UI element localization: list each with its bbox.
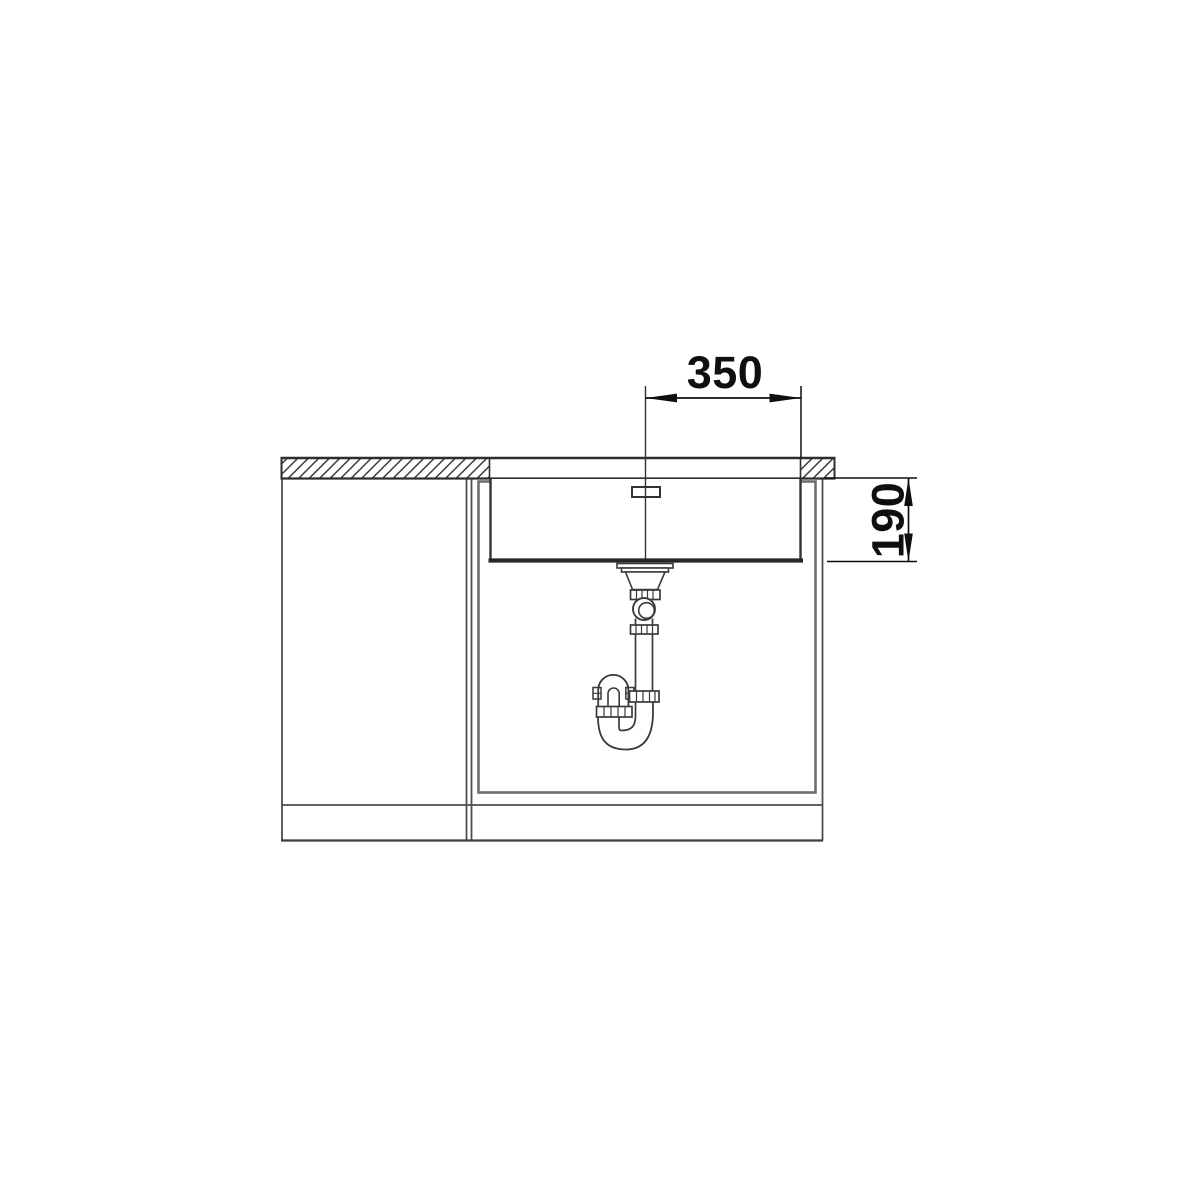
- dim-width-label: 350: [687, 347, 764, 398]
- trap-inlet-nut: [630, 691, 660, 702]
- dim-width-arrow-left: [646, 394, 678, 403]
- siphon-trap: [593, 619, 659, 750]
- trap-arch-inner: [608, 688, 619, 707]
- sink-installation-drawing: 350 190: [0, 0, 1200, 1200]
- countertop-hatch-left: [282, 459, 490, 478]
- technical-drawing-page: 350 190: [0, 0, 1200, 1200]
- dimension-depth-190: 190: [825, 478, 918, 562]
- dim-width-arrow-right: [770, 394, 802, 403]
- dimension-width-350: 350: [646, 347, 802, 458]
- trap-arch-outer: [598, 675, 628, 707]
- drain-strainer: [617, 564, 673, 621]
- dim-depth-label: 190: [863, 482, 914, 559]
- trap-left-nut: [597, 707, 633, 718]
- countertop-hatch-right: [801, 459, 835, 478]
- strainer-body: [626, 572, 666, 590]
- trap-upper-nut: [631, 625, 659, 634]
- countertop: [281, 458, 836, 480]
